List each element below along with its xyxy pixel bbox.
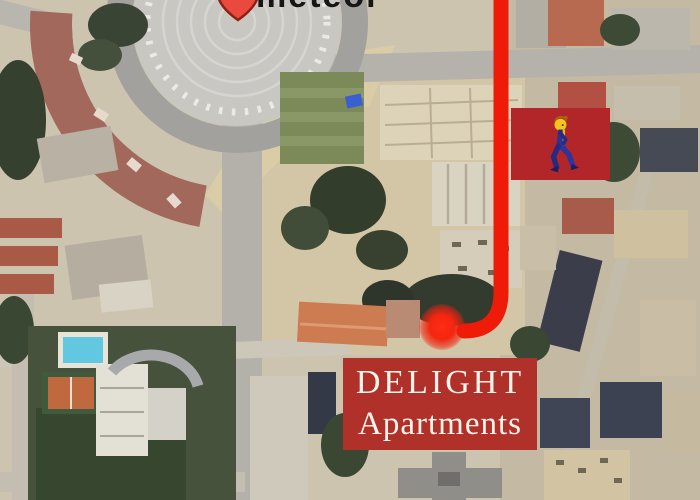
destination-label: DELIGHT Apartments [343, 358, 537, 450]
origin-pin [214, 0, 262, 24]
destination-label-line1: DELIGHT [343, 363, 537, 403]
map-screenshot: meteor DELIGHT Apartments [0, 0, 700, 500]
destination-label-line2: Apartments [343, 403, 537, 445]
route-line [464, 0, 501, 331]
walking-person-icon [541, 114, 581, 174]
map-pin-icon [218, 0, 258, 20]
pedestrian-badge [511, 108, 610, 180]
origin-partial-text: meteor [256, 0, 381, 16]
